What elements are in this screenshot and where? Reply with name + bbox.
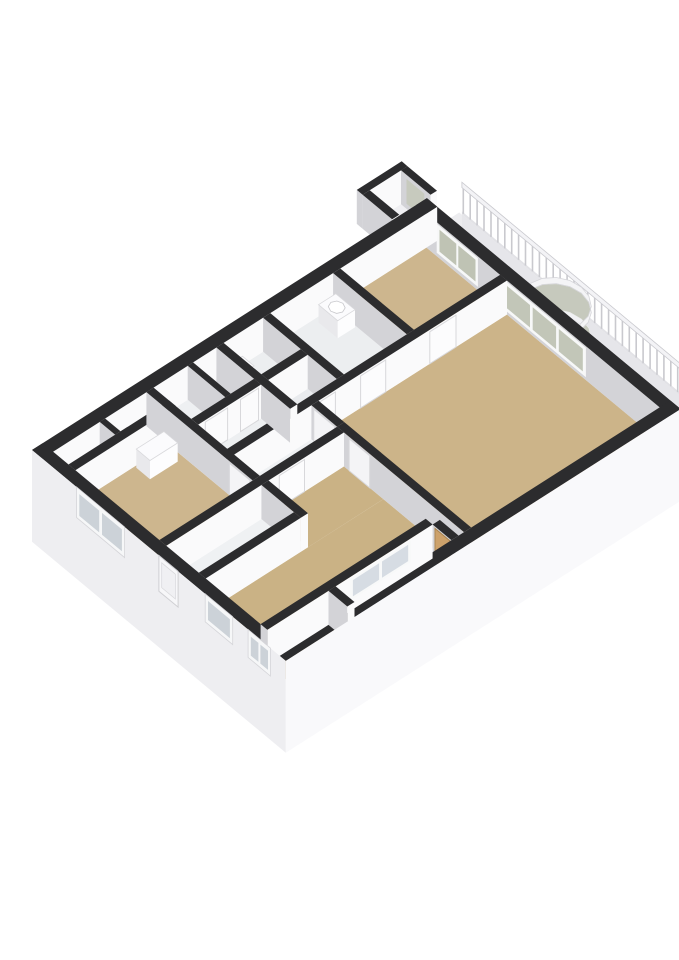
wall-closet-right-face-front: [290, 404, 297, 443]
storage-protrusion-far-wall-face-left: [357, 190, 363, 229]
floor-plan-stage: [0, 0, 679, 960]
wall-entry-kitchen-divider-face-front: [301, 513, 308, 552]
bathroom-sink-bowl: [328, 301, 345, 313]
floor-plan-svg: [0, 0, 679, 960]
